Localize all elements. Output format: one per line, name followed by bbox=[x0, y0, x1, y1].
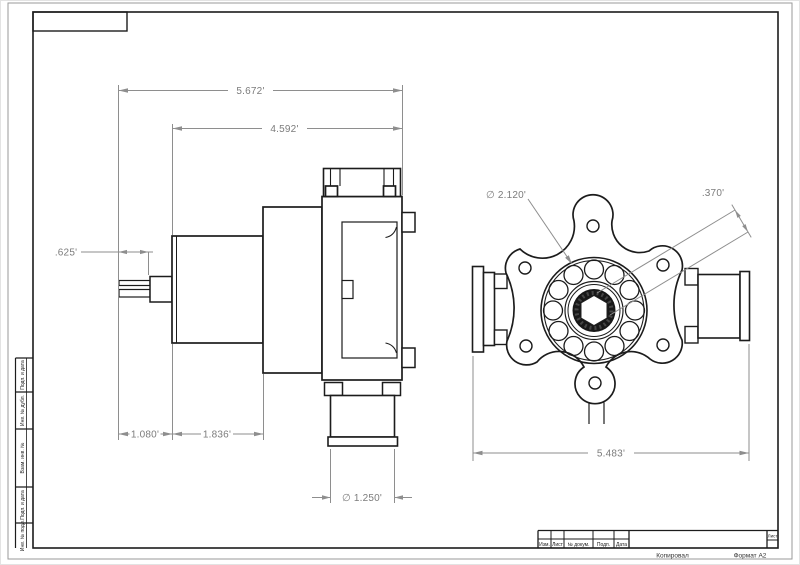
side-port-lower bbox=[402, 348, 415, 368]
footer: Копировал Формат А2 bbox=[656, 553, 767, 560]
end-barb-tube bbox=[698, 275, 740, 339]
margin-field-4: Подп. и дата bbox=[20, 490, 26, 520]
tb-col-list: Лист bbox=[552, 542, 564, 548]
engineering-drawing: Подп. и дата Инв. № дубл. Взам. инв. № П… bbox=[0, 0, 800, 565]
margin-field-1: Подп. и дата bbox=[20, 360, 26, 390]
pump-bracket bbox=[263, 207, 322, 373]
cap-foot-right bbox=[384, 186, 396, 197]
end-left-cap bbox=[473, 267, 484, 353]
margin-field-2: Инв. № дубл. bbox=[20, 395, 26, 426]
top-left-stamp-box bbox=[33, 12, 127, 31]
terminal-block bbox=[150, 277, 172, 303]
margin-field-5: Инв. № подл. bbox=[20, 520, 26, 551]
margin-column: Подп. и дата Инв. № дубл. Взам. инв. № П… bbox=[16, 358, 34, 551]
margin-field-3: Взам. инв. № bbox=[20, 443, 26, 474]
tb-col-podp: Подп. bbox=[597, 542, 610, 548]
outlet-barb-tube bbox=[331, 396, 395, 438]
end-barb-bead bbox=[740, 272, 750, 341]
dim-motor-length: 1.836' bbox=[203, 430, 231, 441]
end-left-step bbox=[484, 273, 495, 346]
dim-offset: 1.080' bbox=[131, 430, 159, 441]
tb-col-doc: № докум. bbox=[568, 542, 590, 548]
terminal-blade-lower bbox=[119, 290, 150, 298]
dim-outlet-diameter: ∅ 1.250' bbox=[342, 493, 382, 504]
side-port-upper bbox=[402, 213, 415, 233]
footer-kopiroval: Копировал bbox=[656, 553, 689, 560]
tb-col-izm: Изм. bbox=[539, 542, 550, 548]
cap-foot-left bbox=[326, 186, 338, 197]
dim-boss-diameter: ∅ 2.120' bbox=[486, 190, 526, 201]
dim-terminal-length: .625' bbox=[55, 248, 77, 259]
pump-head bbox=[322, 197, 402, 381]
dim-body-length: 4.592' bbox=[270, 124, 298, 135]
dim-overall-length: 5.672' bbox=[236, 86, 264, 97]
tb-sheet-cell: Лист bbox=[768, 534, 778, 539]
motor-body bbox=[172, 236, 263, 343]
side-view bbox=[119, 169, 415, 447]
outlet-tab-left bbox=[325, 383, 343, 396]
dim-hex-size: .370' bbox=[702, 188, 724, 199]
dim-end-width: 5.483' bbox=[597, 449, 625, 460]
end-view bbox=[473, 195, 750, 424]
outlet-tab-right bbox=[383, 383, 401, 396]
window-tab bbox=[342, 281, 353, 299]
tb-col-data: Дата bbox=[616, 542, 627, 548]
footer-format: Формат А2 bbox=[734, 553, 767, 560]
title-block: Изм. Лист № докум. Подп. Дата Лист bbox=[538, 531, 778, 549]
drawing-sheet: Подп. и дата Инв. № дубл. Взам. инв. № П… bbox=[0, 0, 800, 565]
terminal-blade-upper bbox=[119, 281, 150, 286]
outlet-barb-bead bbox=[328, 437, 398, 446]
